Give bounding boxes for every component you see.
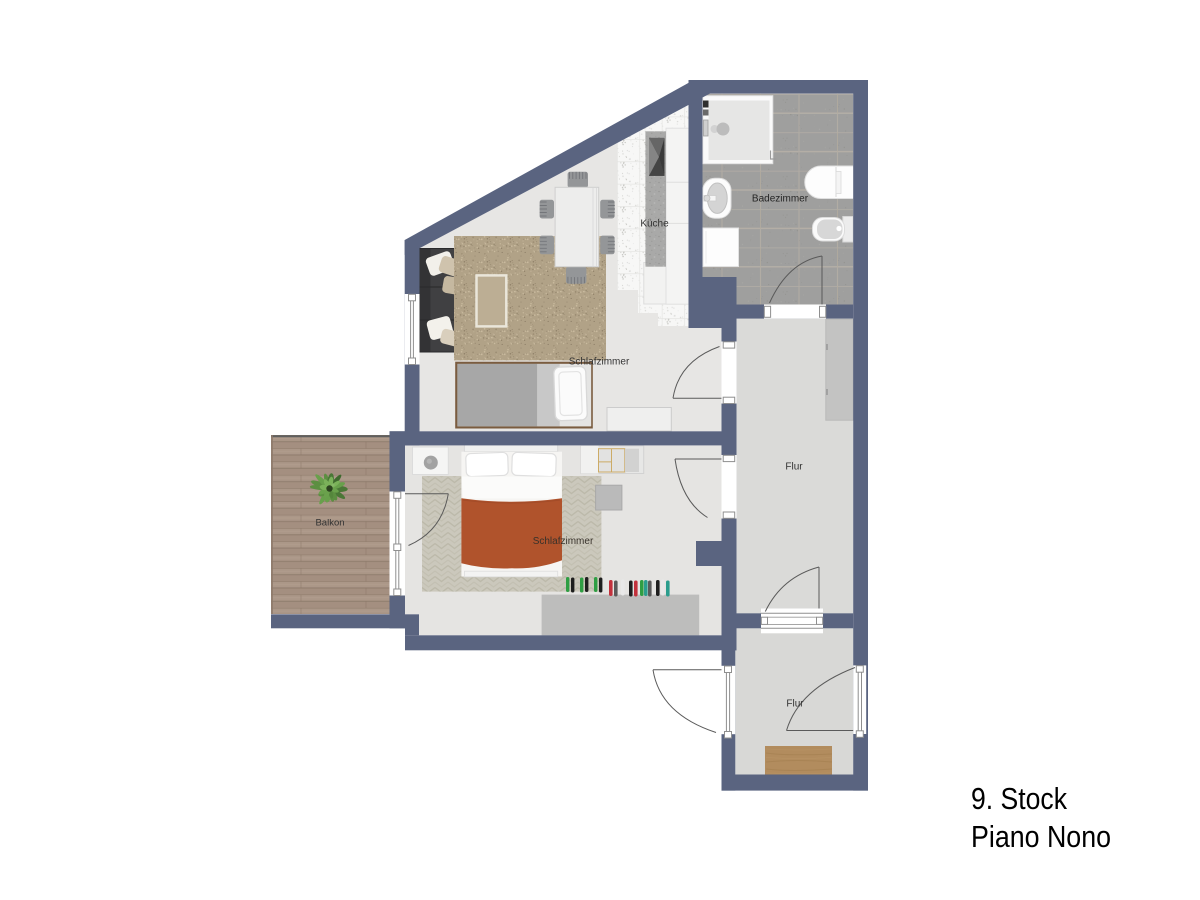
svg-text:Küche: Küche	[640, 219, 669, 230]
svg-text:Piano Nono: Piano Nono	[971, 819, 1111, 854]
svg-text:9. Stock: 9. Stock	[971, 781, 1067, 816]
svg-text:Schlafzimmer: Schlafzimmer	[569, 357, 630, 368]
svg-text:Badezimmer: Badezimmer	[752, 194, 809, 205]
svg-text:Balkon: Balkon	[315, 518, 344, 529]
svg-text:Schlafzimmer: Schlafzimmer	[533, 536, 594, 547]
svg-text:Flur: Flur	[785, 462, 803, 473]
svg-text:Flur: Flur	[786, 699, 804, 710]
